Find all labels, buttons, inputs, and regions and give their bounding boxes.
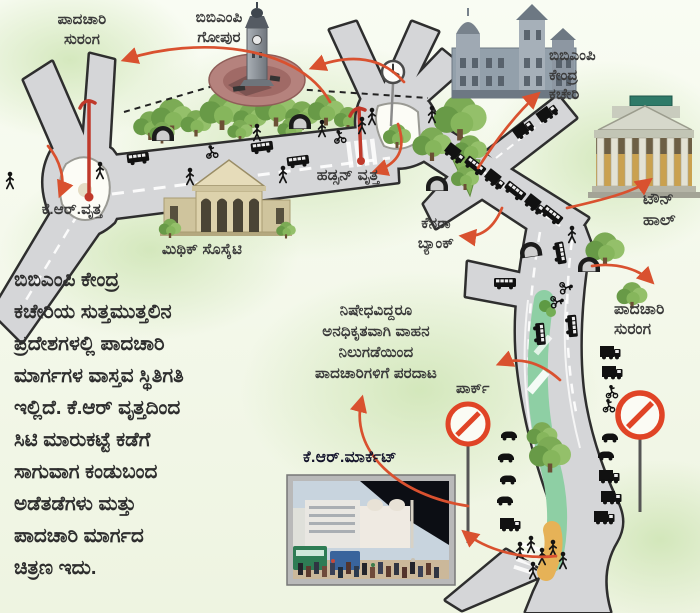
label-park: ಪಾರ್ಕ್ — [456, 380, 520, 399]
label-bbmp-head-office: ಬಿಬಿಎಂಪಿ ಕೇಂದ್ರ ಕಚೇರಿ — [549, 46, 627, 105]
intro-paragraph: ಬಿಬಿಎಂಪಿ ಕೇಂದ್ರ ಕಚೇರಿಯ ಸುತ್ತಮುತ್ತಲಿನ ಪ್ರ… — [14, 264, 258, 584]
label-bbmp-tower: ಬಿಬಿಎಂಪಿ ಗೋಪುರ — [176, 8, 262, 47]
label-pedestrian-tunnel-left: ಪಾದಚಾರಿ ಸುರಂಗ — [34, 10, 130, 49]
label-kr-circle: ಕೆ.ಆರ್.ವೃತ್ತ — [20, 200, 124, 220]
label-canara-bank: ಕೆನರಾ ಬ್ಯಾಂಕ್ — [398, 214, 474, 253]
label-kr-market: ಕೆ.ಆರ್.ಮಾರ್ಕೆಟ್ — [303, 448, 463, 468]
label-hudson-circle: ಹಡ್ಸನ್ ವೃತ್ತ — [296, 166, 400, 186]
label-parking-note: ನಿಷೇಧವಿದ್ದರೂ ಅನಧಿಕೃತವಾಗಿ ವಾಹನ ನಿಲುಗಡೆಯಿಂ… — [278, 300, 474, 384]
pedestrian-path-infographic: ಪಾದಚಾರಿ ಸುರಂಗ ಬಿಬಿಎಂಪಿ ಗೋಪುರ ಬಿಬಿಎಂಪಿ ಕೇ… — [0, 0, 700, 613]
label-pedestrian-tunnel-right: ಪಾದಚಾರಿ ಸುರಂಗ — [614, 300, 700, 340]
label-town-hall: ಟೌನ್ ಹಾಲ್ — [643, 190, 699, 232]
label-mythic-society: ಮಿಥಿಕ್ ಸೊಸೈಟಿ — [144, 240, 260, 260]
kr-market-photo — [287, 475, 455, 585]
